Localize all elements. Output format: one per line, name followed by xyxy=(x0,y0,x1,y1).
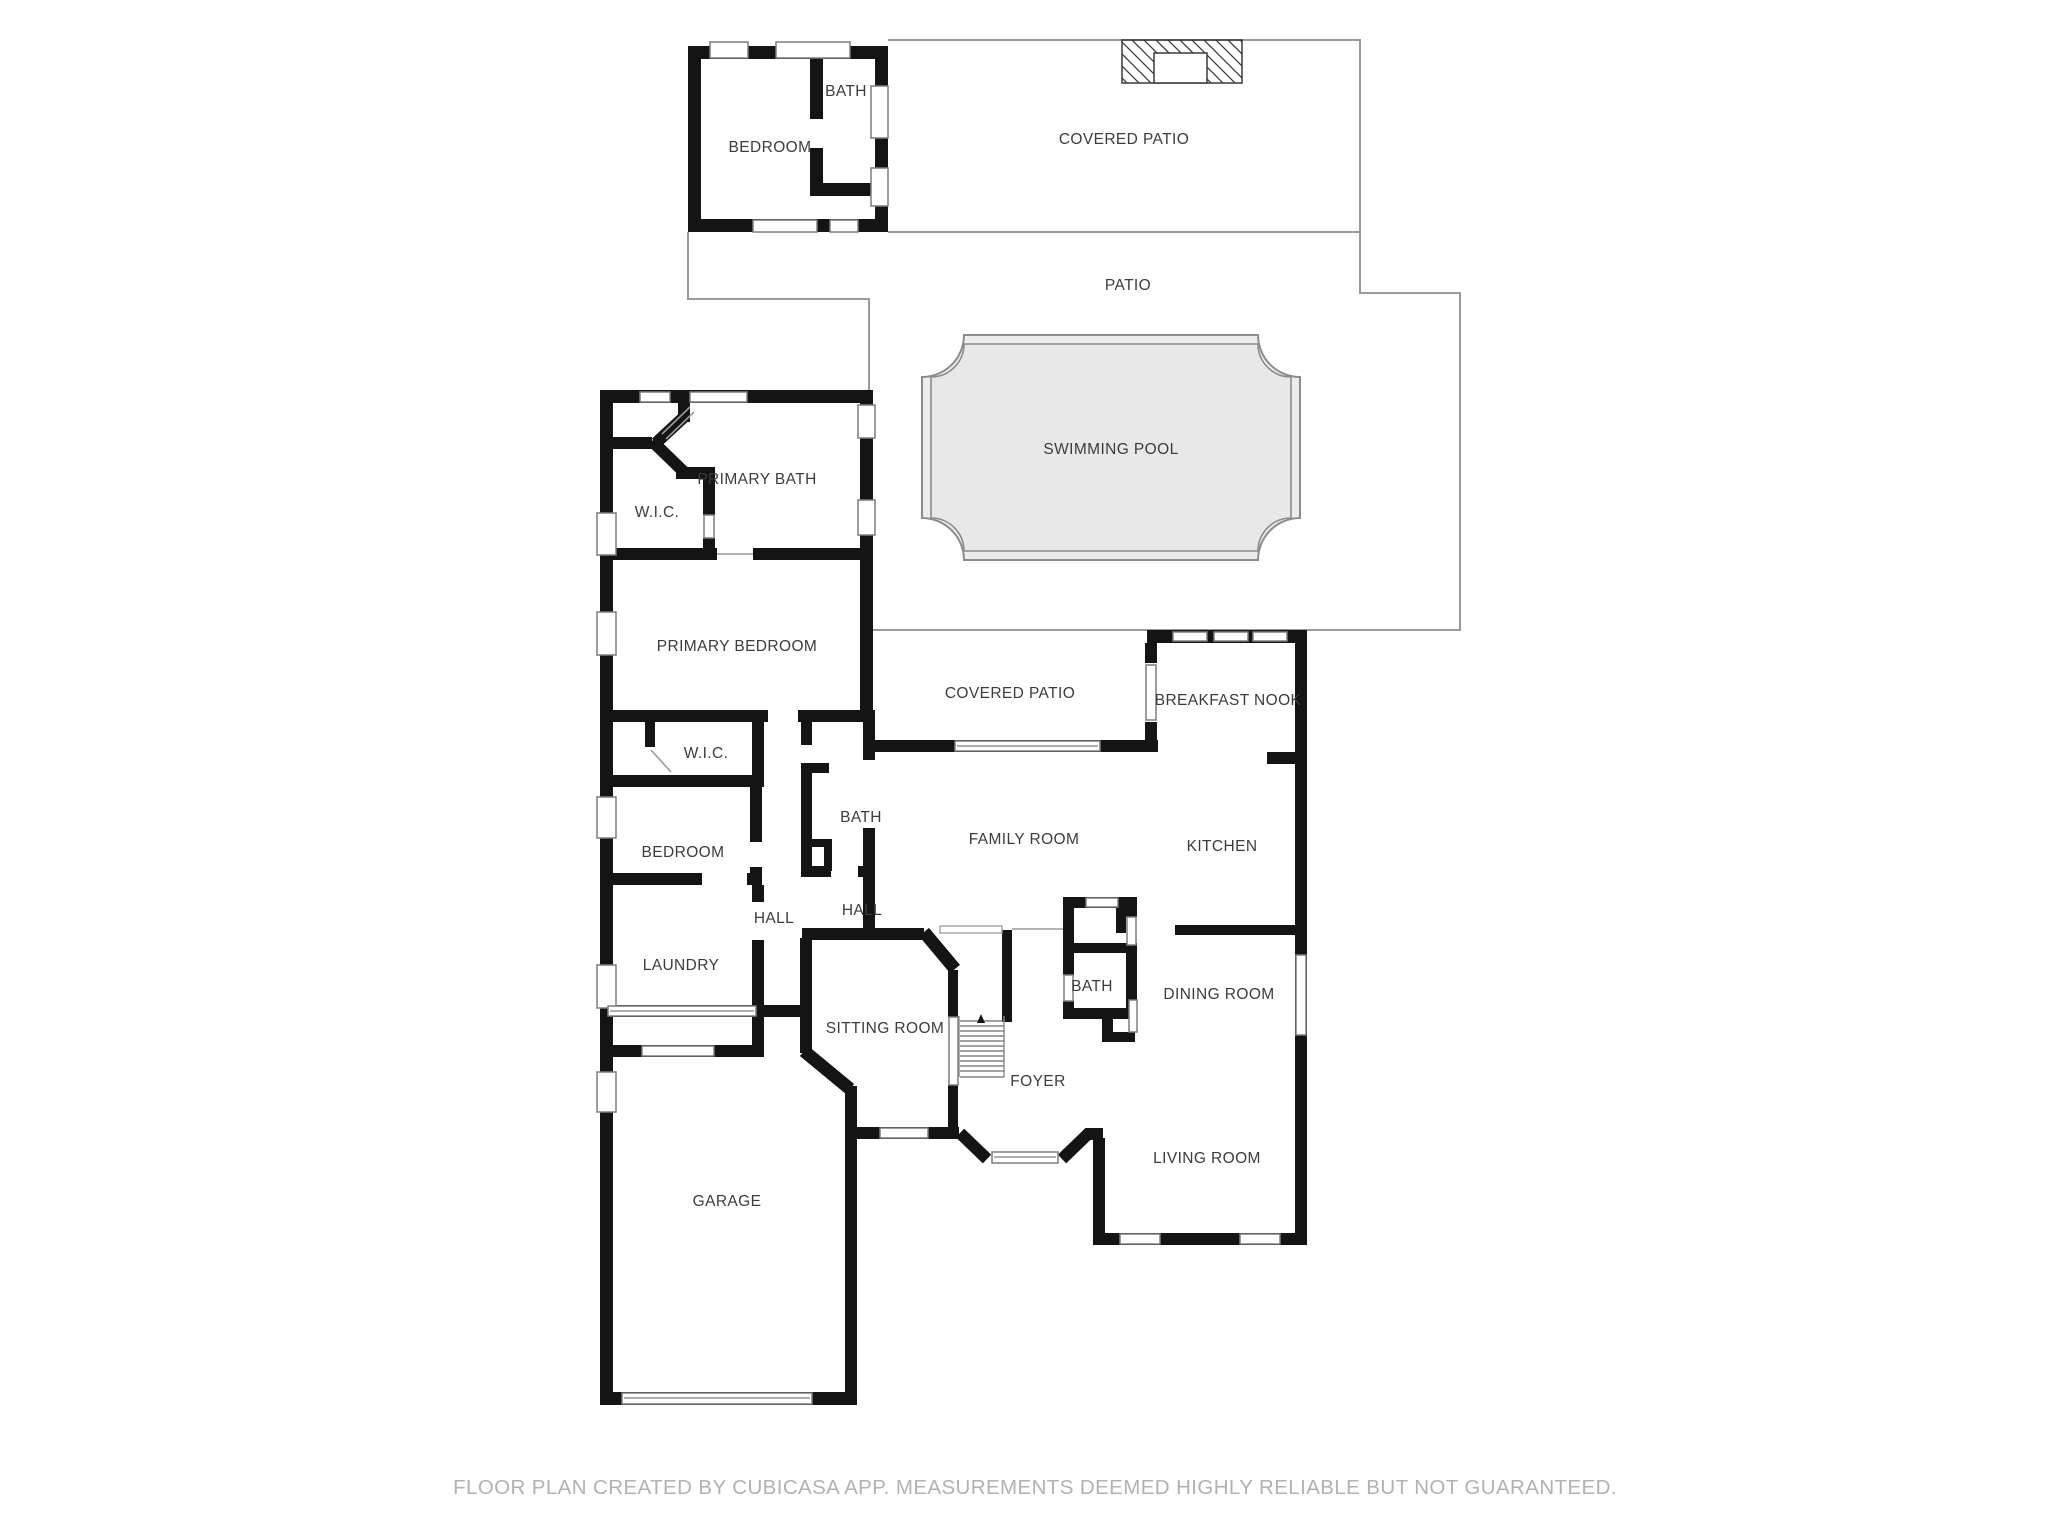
room-label-kitchen: KITCHEN xyxy=(1187,838,1258,855)
room-label-covered-patio-top: COVERED PATIO xyxy=(1059,131,1189,148)
room-label-bedroom-2: BEDROOM xyxy=(642,844,725,861)
room-label-breakfast-nook: BREAKFAST NOOK xyxy=(1155,692,1302,709)
room-label-family-room: FAMILY ROOM xyxy=(969,831,1080,848)
room-label-bedroom-top: BEDROOM xyxy=(729,139,812,156)
room-label-wic-primary: W.I.C. xyxy=(635,504,680,521)
room-label-primary-bath: PRIMARY BATH xyxy=(697,471,816,488)
room-label-laundry: LAUNDRY xyxy=(643,957,720,974)
room-label-dining-room: DINING ROOM xyxy=(1163,986,1274,1003)
room-label-bath-top: BATH xyxy=(825,83,867,100)
room-label-covered-patio-mid: COVERED PATIO xyxy=(945,685,1075,702)
room-label-foyer: FOYER xyxy=(1010,1073,1065,1090)
room-label-garage: GARAGE xyxy=(693,1193,762,1210)
staircase xyxy=(959,1014,1004,1077)
room-label-swimming-pool: SWIMMING POOL xyxy=(1043,441,1178,458)
footer-disclaimer: FLOOR PLAN CREATED BY CUBICASA APP. MEAS… xyxy=(453,1476,1617,1499)
room-label-hall-left: HALL xyxy=(754,910,794,927)
stairs-up-arrow-icon xyxy=(977,1014,985,1023)
room-label-patio: PATIO xyxy=(1105,277,1151,294)
floor-plan-page: BEDROOM BATH COVERED PATIO PATIO SWIMMIN… xyxy=(0,0,2048,1536)
room-label-primary-bedroom: PRIMARY BEDROOM xyxy=(657,638,817,655)
room-label-wic-2: W.I.C. xyxy=(684,745,729,762)
room-label-bath-hall: BATH xyxy=(840,809,882,826)
outdoor-fireplace-icon xyxy=(1122,40,1242,83)
room-label-hall-right: HALL xyxy=(842,902,882,919)
room-label-bath-foyer: BATH xyxy=(1071,978,1113,995)
room-label-sitting-room: SITTING ROOM xyxy=(826,1020,944,1037)
room-label-living-room: LIVING ROOM xyxy=(1153,1150,1261,1167)
floor-plan-canvas: BEDROOM BATH COVERED PATIO PATIO SWIMMIN… xyxy=(0,0,2048,1536)
